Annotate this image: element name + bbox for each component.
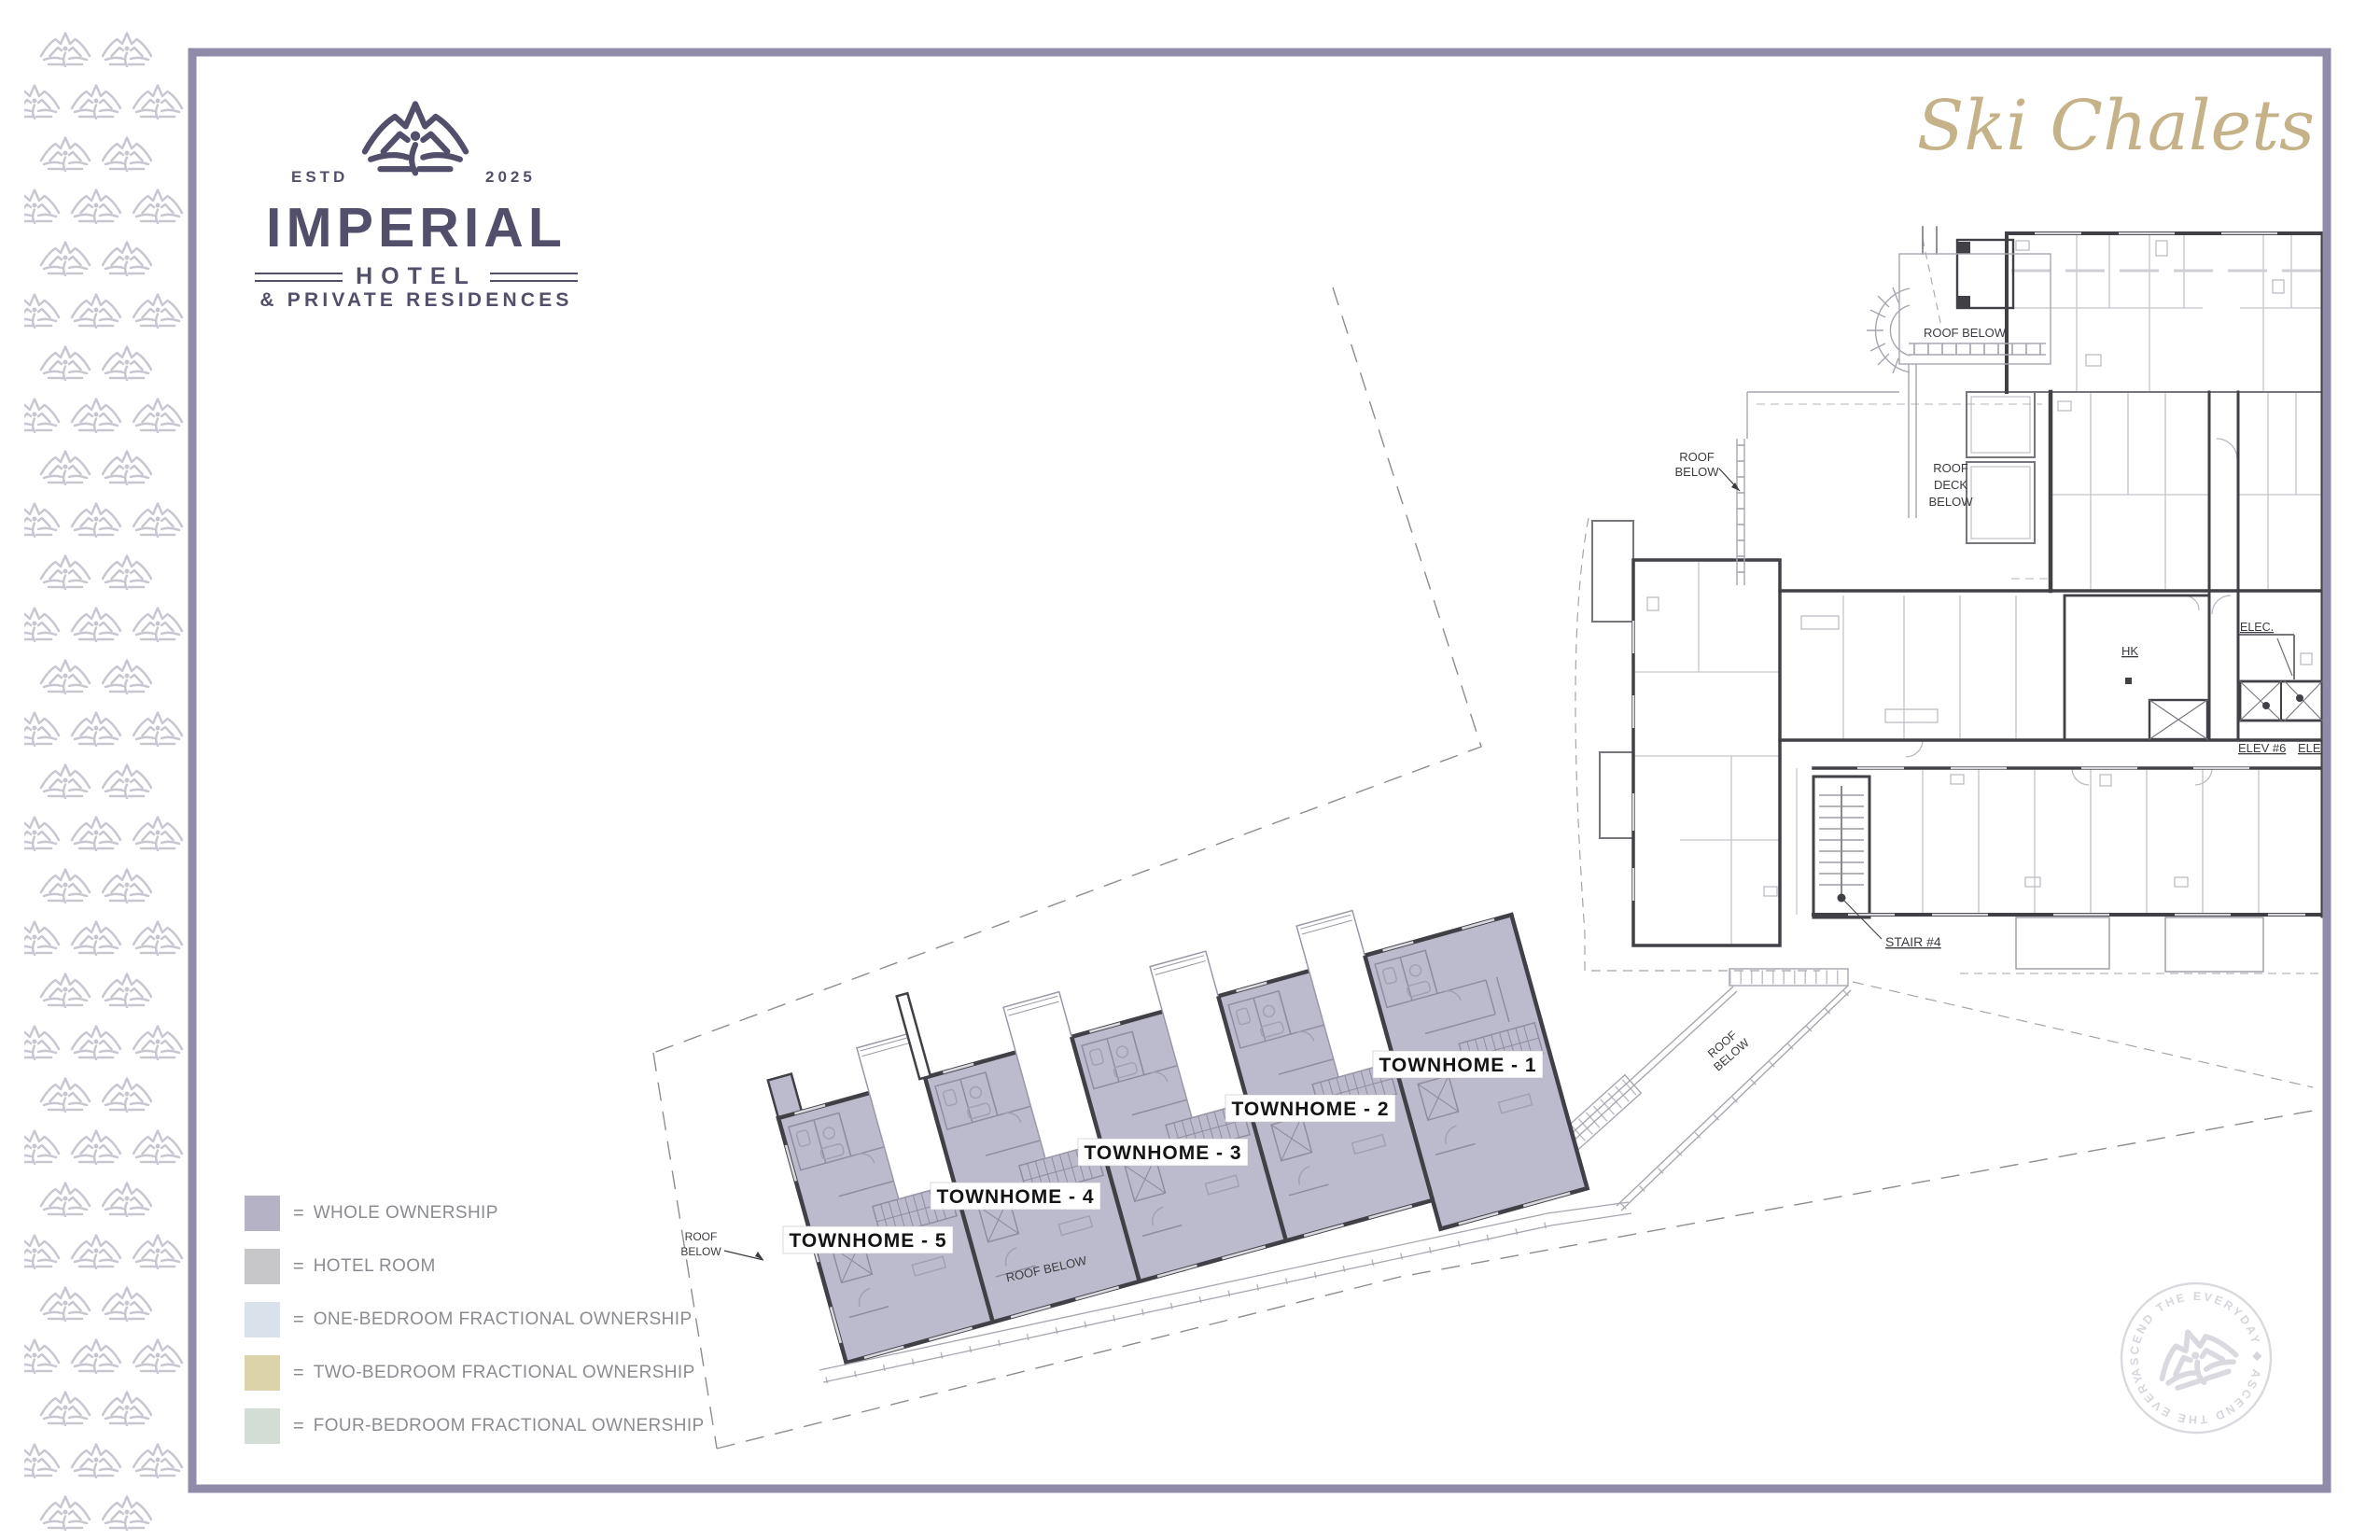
legend-item-hotel-room: = HOTEL ROOM [245, 1249, 705, 1284]
page: { "brand": { "estd": "ESTD", "year": "20… [0, 0, 2380, 1540]
svg-text:TOWNHOME - 3: TOWNHOME - 3 [1084, 1142, 1241, 1164]
legend-swatch-four-bedroom [245, 1408, 280, 1444]
legend-label: ONE-BEDROOM FRACTIONAL OWNERSHIP [314, 1309, 693, 1330]
svg-text:TOWNHOME - 2: TOWNHOME - 2 [1231, 1099, 1389, 1120]
property-line-right [1853, 982, 2313, 1087]
svg-text:TOWNHOME - 4: TOWNHOME - 4 [936, 1186, 1094, 1208]
svg-text:TOWNHOME - 1: TOWNHOME - 1 [1379, 1055, 1536, 1076]
legend-label: HOTEL ROOM [314, 1256, 436, 1277]
townhome-tag-5: TOWNHOME - 5 [783, 1226, 953, 1253]
equals-sign: = [293, 1256, 304, 1278]
legend-swatch-one-bedroom [245, 1302, 280, 1337]
setback-curve [1575, 518, 1820, 971]
legend-item-whole: = WHOLE OWNERSHIP [245, 1196, 705, 1231]
townhome-tag-1: TOWNHOME - 1 [1373, 1051, 1543, 1078]
label-roof-below-top: ROOF BELOW [1924, 326, 2007, 340]
stone-band-top [1729, 969, 1848, 986]
walkway [1562, 969, 1851, 1211]
roof-terrace-features [1737, 254, 2051, 585]
roofbox-dash [1923, 239, 1941, 327]
legend-label: WHOLE OWNERSHIP [314, 1203, 498, 1224]
stamp-crown-icon [2150, 1320, 2241, 1394]
equals-sign: = [293, 1203, 304, 1225]
legend-item-one-bedroom: = ONE-BEDROOM FRACTIONAL OWNERSHIP [245, 1302, 705, 1337]
label-elec: ELEC. [2240, 621, 2274, 634]
label-elev-6: ELEV #6 [2238, 741, 2286, 755]
svg-text:ROOF: ROOF [1933, 461, 1968, 475]
svg-text:BELOW: BELOW [1929, 495, 1974, 509]
spiral-stair [1867, 287, 1910, 373]
legend-swatch-hotel-room [245, 1249, 280, 1284]
legend-swatch-whole [245, 1196, 280, 1231]
label-roof-below-walkway: ROOF BELOW [1702, 1026, 1752, 1074]
equals-sign: = [293, 1363, 304, 1384]
equals-sign: = [293, 1309, 304, 1331]
deck-dash [1757, 404, 2051, 579]
label-stair-4: STAIR #4 [1885, 934, 1941, 949]
townhome-tag-2: TOWNHOME - 2 [1225, 1095, 1395, 1122]
legend-item-two-bedroom: = TWO-BEDROOM FRACTIONAL OWNERSHIP [245, 1355, 705, 1391]
legend-swatch-two-bedroom [245, 1355, 280, 1391]
legend-label: TWO-BEDROOM FRACTIONAL OWNERSHIP [314, 1363, 695, 1383]
svg-text:DECK: DECK [1934, 478, 1967, 492]
label-roof-deck-below: ROOF DECK BELOW [1929, 461, 1974, 509]
svg-text:BELOW: BELOW [1675, 465, 1720, 479]
svg-text:TOWNHOME - 5: TOWNHOME - 5 [789, 1230, 946, 1252]
townhome-tag-3: TOWNHOME - 3 [1078, 1139, 1248, 1166]
townhome-tag-4: TOWNHOME - 4 [931, 1183, 1100, 1210]
apartment-block [1633, 560, 1780, 945]
legend: = WHOLE OWNERSHIP = HOTEL ROOM = ONE-BED… [245, 1196, 705, 1462]
svg-text:ROOF: ROOF [1679, 450, 1715, 464]
legend-item-four-bedroom: = FOUR-BEDROOM FRACTIONAL OWNERSHIP [245, 1408, 705, 1444]
equals-sign: = [293, 1416, 304, 1437]
label-hk: HK [2121, 644, 2138, 658]
legend-label: FOUR-BEDROOM FRACTIONAL OWNERSHIP [314, 1416, 705, 1436]
hk-room [2065, 595, 2209, 740]
label-roof-below-left: ROOF BELOW [1675, 450, 1740, 491]
